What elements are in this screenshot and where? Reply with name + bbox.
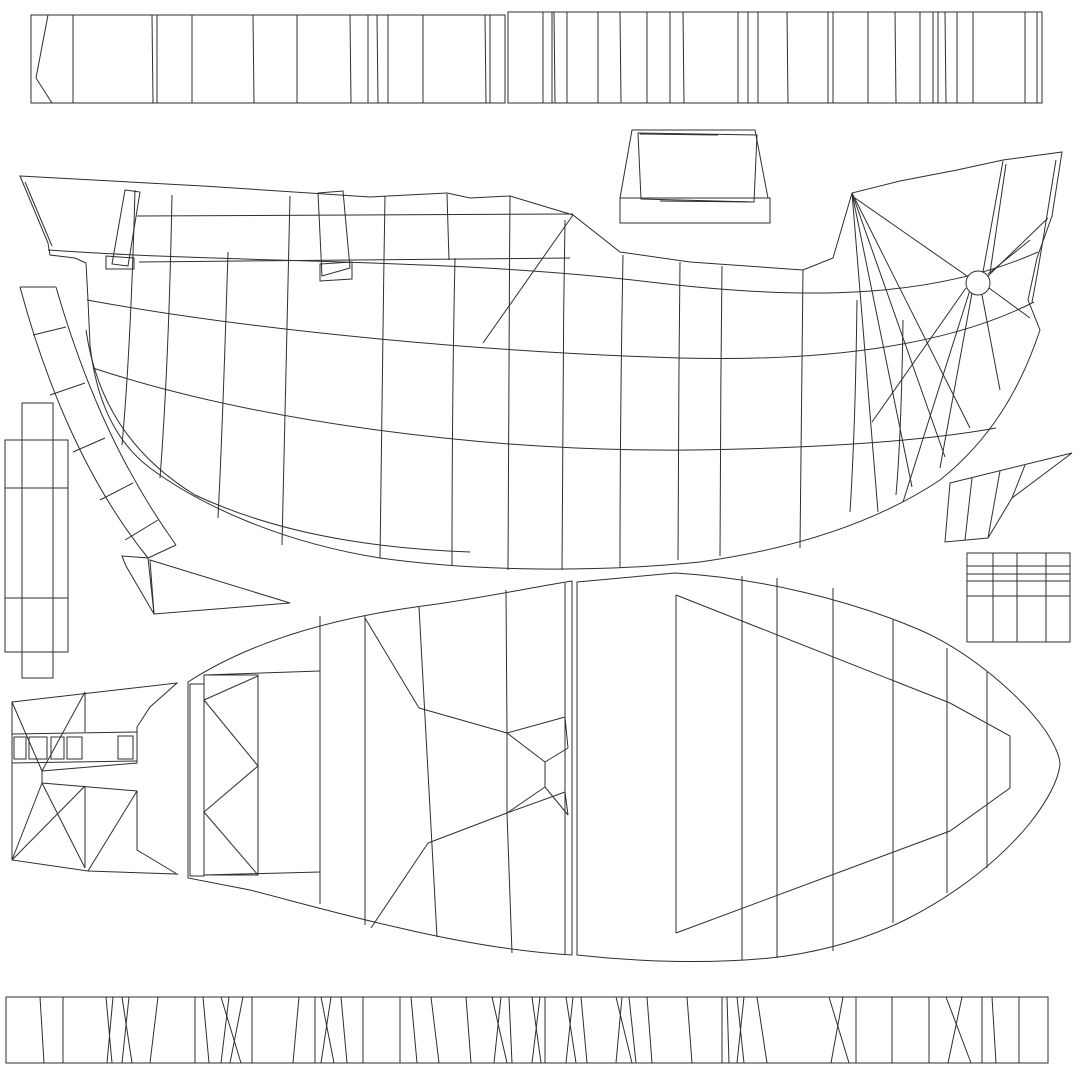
stern-skeg-strip: [20, 287, 290, 614]
top-plank-strip-right: [508, 12, 1042, 103]
deck-top-left-half: [188, 581, 572, 955]
rudder-post-rects: [5, 403, 68, 678]
uv-unwrap-canvas: [0, 0, 1080, 1080]
hull-side-view: [20, 152, 1062, 570]
uv-wireframe-svg: [0, 0, 1080, 1080]
detail-grid-patch: [967, 553, 1070, 642]
stern-transom-h-piece: [12, 683, 177, 874]
bow-wing-piece: [945, 453, 1072, 542]
deck-top-right-half: [577, 573, 1060, 962]
hatch-lid: [620, 130, 770, 223]
top-plank-strip-left: [31, 15, 505, 103]
bottom-plank-strip: [6, 997, 1048, 1063]
